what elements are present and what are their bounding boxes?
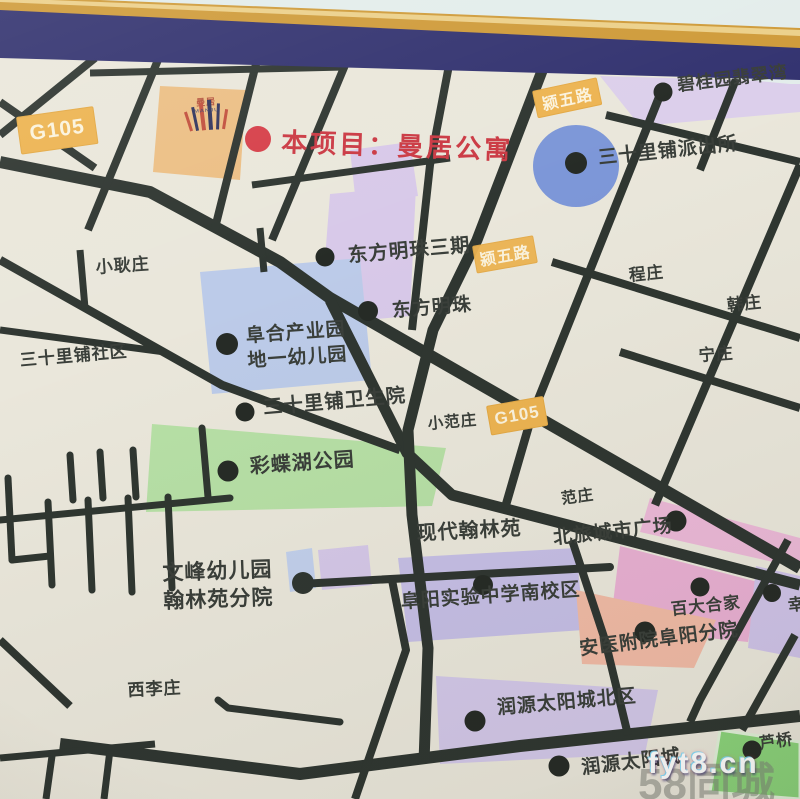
poi-label-xiandai-hanlinyuan: 现代翰林苑: [416, 516, 522, 548]
poi-dot: [565, 152, 587, 174]
poi-label-xing: 幸: [787, 594, 800, 617]
road: [88, 55, 160, 230]
road-end-bulb: [292, 572, 314, 594]
road: [90, 67, 345, 73]
poi-label-xilizhuang: 西李庄: [127, 677, 182, 702]
poi-label-ningzhuang: 宁庄: [698, 344, 734, 368]
poi-label-xiaofanzhuang: 小范庄: [427, 411, 478, 436]
poi-dot: [218, 461, 239, 482]
poi-dot: [358, 301, 378, 321]
site-watermark: fyt8.cn: [648, 747, 759, 781]
poi-label-fuhe-kindergarten: 阜合产业园 地一幼儿园: [245, 317, 348, 374]
poi-label-xiaogengzhuang: 小耿庄: [95, 253, 150, 279]
road: [218, 700, 340, 722]
poi-dot: [216, 333, 238, 355]
road: [260, 228, 264, 272]
road: [80, 250, 85, 308]
project-logo: 曼居 MANJU: [176, 96, 240, 162]
poi-dot: [654, 83, 673, 102]
road: [104, 750, 110, 799]
poi-dot: [316, 248, 335, 267]
poi-label-wenfeng-kindergarten: 文峰幼儿园 翰林苑分院: [162, 556, 274, 615]
poi-dot: [549, 756, 570, 777]
poi-dot: [236, 403, 255, 422]
poi-label-hanzhuang: 韩庄: [726, 292, 763, 317]
poi-dot: [763, 584, 781, 602]
road: [0, 640, 70, 706]
road: [46, 756, 52, 799]
road: [552, 262, 800, 338]
poi-label-chengzhuang: 程庄: [628, 262, 665, 287]
poi-dot: [465, 711, 486, 732]
map-photo: 曼居 MANJU G105 颍五路 颍五路 G105 本项目：曼居公寓 碧桂园翡…: [0, 0, 800, 799]
poi-dot: [691, 578, 710, 597]
project-marker-dot: [245, 126, 271, 152]
